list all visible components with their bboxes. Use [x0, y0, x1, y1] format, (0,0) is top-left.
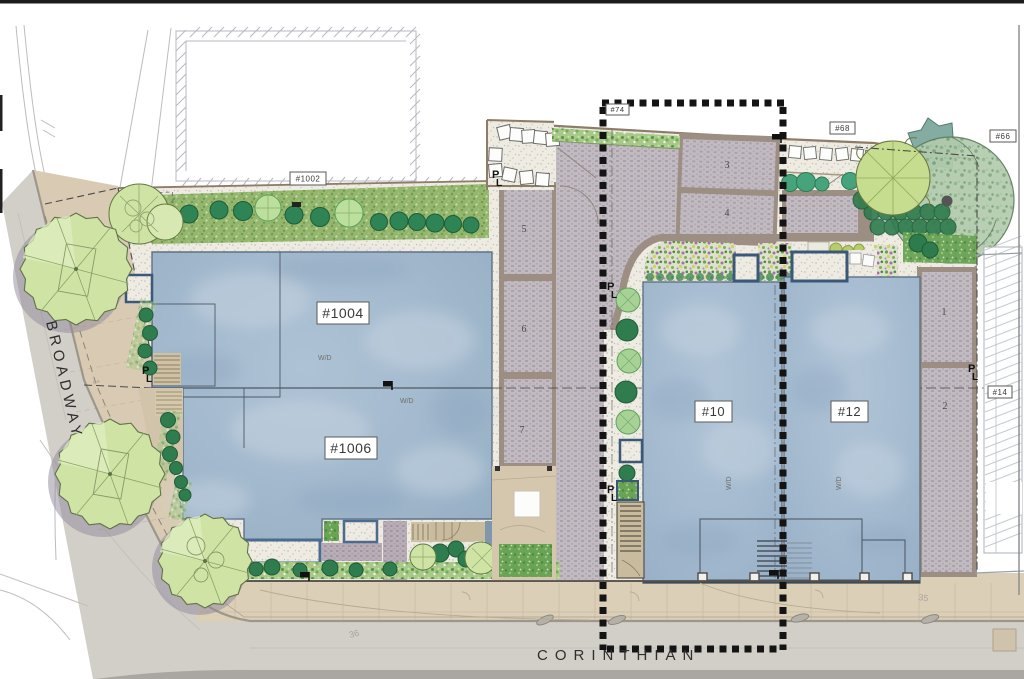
svg-text:L: L [611, 493, 617, 504]
svg-text:#1004: #1004 [322, 305, 363, 321]
svg-text:#74: #74 [610, 105, 624, 114]
svg-text:7: 7 [520, 425, 525, 436]
svg-text:#68: #68 [835, 124, 850, 133]
svg-text:CORINTHIAN: CORINTHIAN [537, 647, 700, 664]
svg-text:W/D: W/D [836, 476, 843, 490]
svg-text:L: L [972, 372, 978, 383]
svg-text:W/D: W/D [400, 398, 414, 405]
svg-text:2: 2 [943, 401, 948, 412]
svg-text:#10: #10 [702, 404, 725, 419]
svg-text:#66: #66 [996, 132, 1011, 141]
svg-text:#1002: #1002 [296, 174, 321, 183]
svg-text:35: 35 [918, 592, 929, 603]
svg-text:6: 6 [522, 324, 527, 335]
svg-text:5: 5 [522, 224, 527, 235]
svg-text:4: 4 [725, 208, 730, 219]
svg-text:L: L [146, 374, 152, 385]
svg-text:3: 3 [725, 160, 730, 171]
svg-text:L: L [611, 290, 617, 301]
svg-text:L: L [496, 178, 502, 189]
svg-text:#12: #12 [838, 404, 861, 419]
svg-text:W/D: W/D [318, 355, 332, 362]
svg-text:#14: #14 [993, 388, 1008, 397]
svg-text:1: 1 [942, 307, 947, 318]
svg-text:#1006: #1006 [330, 440, 371, 456]
svg-text:W/D: W/D [726, 476, 733, 490]
